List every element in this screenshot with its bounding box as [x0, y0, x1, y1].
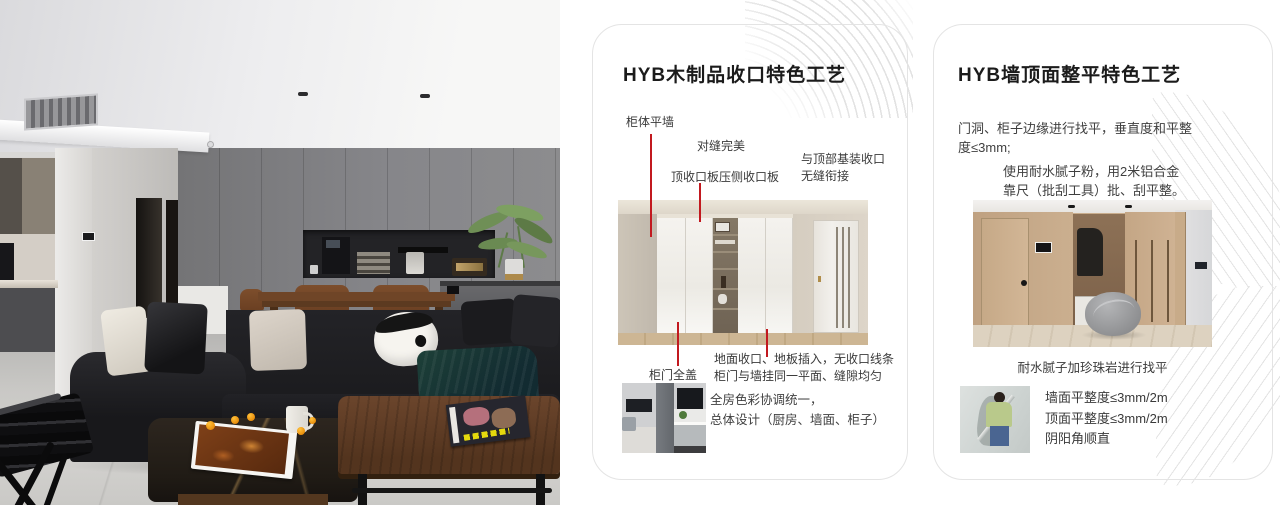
leader-line: [766, 329, 768, 357]
leader-line: [699, 183, 701, 222]
thumb-lower-cabinet: [674, 425, 706, 446]
hall-hanging-clothes: [1077, 228, 1103, 276]
hall-intercom-panel: [1035, 242, 1052, 253]
card2-paragraph2: 使用耐水腻子粉，用2米铝合金 靠尺（批刮工具）批、刮平整。: [1003, 162, 1185, 200]
card1-summary: 全房色彩协调统一， 总体设计（厨房、墙面、柜子）: [710, 390, 885, 430]
panda-eye: [415, 335, 427, 348]
hall-spotlight: [1068, 205, 1075, 208]
kitchen-upper-cabinets: [0, 158, 55, 234]
shelf: [713, 288, 738, 290]
card2-spec-list: 墙面平整度≤3mm/2m 顶面平整度≤3mm/2m 阴阳角顺直: [1045, 388, 1168, 450]
shelf-photo-frame: [715, 222, 730, 232]
gray-bean-bag: [1085, 292, 1141, 336]
magazine-cover: [195, 424, 289, 474]
render-ceiling: [618, 200, 868, 215]
kumquat-fruit: [247, 413, 255, 421]
card2-paragraph1: 门洞、柜子边缘进行找平，垂直度和平整 度≤3mm;: [958, 119, 1192, 157]
cushion-black-leather: [144, 301, 208, 374]
wardrobe-groove: [1151, 240, 1153, 322]
table-crossbar: [352, 488, 552, 493]
wall-switch: [447, 286, 459, 294]
card2-image-caption: 耐水腻子加珍珠岩进行找平: [973, 357, 1212, 376]
hall-door-knob: [1021, 280, 1027, 286]
callout-perfect-seam: 对缝完美: [697, 137, 745, 154]
cup-rack: [357, 252, 390, 274]
hall-hidden-door: [981, 218, 1029, 336]
leader-line: [650, 134, 652, 237]
cushion-beige: [249, 309, 307, 371]
spec-corners-straight: 阴阳角顺直: [1045, 429, 1168, 450]
kumquat-fruit: [297, 427, 305, 435]
callout-top-closing-panel: 顶收口板压侧收口板: [671, 168, 779, 185]
door-stripe: [848, 227, 850, 328]
shelf: [713, 234, 738, 236]
render-white-door: [813, 220, 859, 333]
callout-floor-line1: 地面收口、地板插入，无收口线条: [714, 351, 894, 368]
spec-wall-flatness: 墙面平整度≤3mm/2m: [1045, 388, 1168, 409]
callout-cabinet-flush-wall: 柜体平墙: [626, 113, 674, 130]
worker-photo: [960, 386, 1030, 453]
ac-vent: [24, 93, 98, 130]
callout-ceiling-joint-line2: 无缝衔接: [801, 168, 885, 185]
kitchen-lower-cabinets: [0, 288, 58, 352]
kumquat-fruit: [309, 417, 316, 424]
thumb-tv: [626, 399, 652, 412]
hall-wall-fixture: [1195, 262, 1207, 269]
stone-table-wood-base: [178, 494, 328, 505]
spec-ceiling-flatness: 顶面平整度≤3mm/2m: [1045, 409, 1168, 430]
wardrobe-groove: [1167, 240, 1169, 322]
bean-bag-fold: [1091, 296, 1137, 330]
shelf: [713, 251, 738, 253]
open-shelf-column: [713, 218, 738, 333]
card2-para2-line1: 使用耐水腻子粉，用2米铝合金: [1003, 162, 1185, 181]
decorative-arc-pattern: [745, 0, 913, 118]
coffee-cup: [310, 265, 318, 274]
worker-shirt: [986, 402, 1012, 427]
dining-table-apron: [262, 301, 451, 307]
shelf: [713, 268, 738, 270]
kitchen-coffee-machine: [0, 243, 14, 281]
dark-door-frame: [166, 200, 178, 317]
dining-table-top: [258, 292, 455, 301]
thumb-sofa: [622, 417, 636, 431]
magazine-photo: [491, 407, 517, 430]
callout-ceiling-joint-line1: 与顶部基装收口: [801, 151, 885, 168]
spotlight: [298, 92, 308, 96]
interior-thumbnail-photo: [622, 383, 706, 453]
shelf-bottle: [721, 276, 726, 288]
hall-door-leaf: [1175, 212, 1186, 336]
capsule-machine: [406, 252, 424, 274]
magazine-title-text: [463, 428, 509, 441]
door-stripe: [836, 227, 838, 328]
spotlight: [420, 94, 430, 98]
callout-full-cover-door: 柜门全盖: [649, 366, 697, 383]
magazine-photo: [462, 406, 490, 427]
door-seam: [765, 218, 766, 333]
card2-para1-line2: 度≤3mm;: [958, 138, 1192, 157]
living-room-photo: [0, 0, 560, 505]
wardrobe-render-image: [618, 200, 868, 345]
card1-title: HYB木制品收口特色工艺: [623, 60, 846, 87]
callout-ceiling-joint: 与顶部基装收口 无缝衔接: [801, 151, 885, 185]
render-wood-floor: [618, 333, 868, 345]
leader-line: [677, 322, 679, 366]
card1-summary-line1: 全房色彩协调统一，: [710, 390, 885, 410]
ceiling-sensor: [207, 141, 214, 148]
thumb-kickspace: [674, 446, 706, 453]
card2-title: HYB墙顶面整平特色工艺: [958, 60, 1181, 87]
thumb-appliance: [677, 388, 703, 409]
dark-door: [136, 198, 162, 318]
door-seam: [685, 218, 686, 333]
card2-para2-line2: 靠尺（批刮工具）批、刮平整。: [1003, 181, 1185, 200]
callout-floor-line2: 柜门与墙挂同一平面、缝隙均匀: [714, 368, 894, 385]
promo-page: HYB木制品收口特色工艺 柜体平墙 对缝完美 顶收口板压侧收口板 与顶部基装收口…: [0, 0, 1280, 505]
feature-panel: HYB木制品收口特色工艺 柜体平墙 对缝完美 顶收口板压侧收口板 与顶部基装收口…: [560, 0, 1280, 505]
card1-summary-line2: 总体设计（厨房、墙面、柜子）: [710, 410, 885, 430]
thumb-gray-cabinet: [656, 383, 674, 453]
callout-floor-closing: 地面收口、地板插入，无收口线条 柜门与墙挂同一平面、缝隙均匀: [714, 351, 894, 385]
door-stripe: [842, 227, 844, 328]
shelf-vase: [718, 294, 727, 304]
kitchen-countertop: [0, 280, 58, 288]
worker-jeans: [990, 426, 1009, 446]
cushion-dark: [510, 294, 560, 348]
espresso-machine-screen: [326, 240, 340, 248]
shelf-books: [715, 240, 735, 244]
kumquat-fruit: [206, 421, 215, 430]
door-handle: [818, 276, 821, 282]
retro-speaker: [452, 258, 487, 276]
kumquat-fruit: [231, 416, 239, 424]
hallway-photo: [973, 200, 1212, 347]
hall-spotlight: [1125, 205, 1132, 208]
thumb-plant: [679, 411, 687, 419]
thermostat: [82, 232, 95, 241]
card2-para1-line1: 门洞、柜子边缘进行找平，垂直度和平整: [958, 119, 1192, 138]
shelf: [713, 308, 738, 310]
plant-vase-band: [505, 274, 523, 280]
